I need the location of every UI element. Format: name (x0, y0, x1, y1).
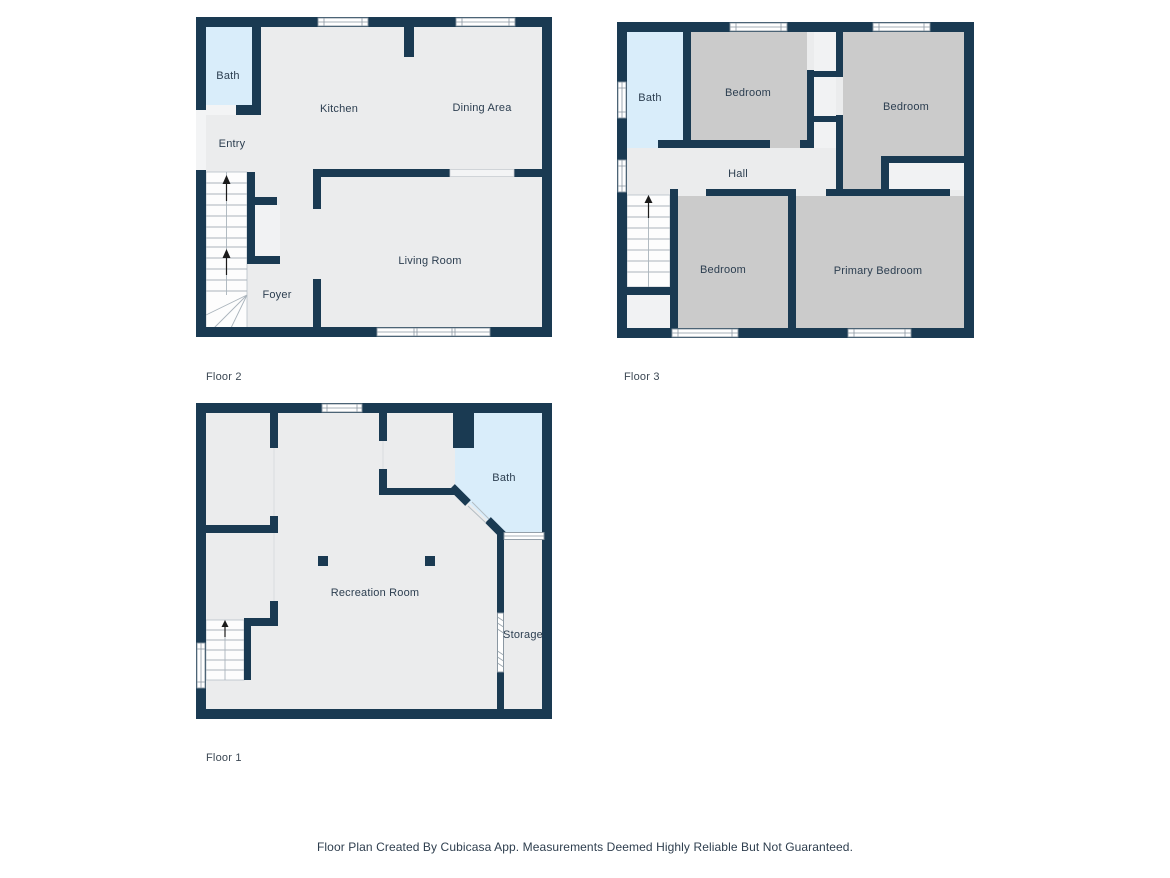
room-label-storage: Storage (503, 629, 543, 641)
entry-door-opening (196, 110, 206, 170)
stairs (206, 172, 247, 330)
room-label-primary-bedroom: Primary Bedroom (834, 265, 923, 277)
floor-3-plan-drawing (617, 22, 974, 338)
bath-door-opening (206, 105, 236, 115)
room-label-bath: Bath (638, 92, 661, 104)
room-label-bedroom-3: Bedroom (700, 264, 746, 276)
room-label-foyer: Foyer (262, 289, 291, 301)
footer-disclaimer: Floor Plan Created By Cubicasa App. Meas… (0, 840, 1170, 854)
room-label-living-room: Living Room (398, 255, 461, 267)
room-label-bedroom-2: Bedroom (883, 101, 929, 113)
room-label-entry: Entry (219, 138, 246, 150)
floor-plan-floor-3: Bath Bedroom Bedroom Hall Bedroom Primar… (617, 22, 974, 338)
floor-plan-floor-1: Bath Recreation Room Storage (196, 403, 552, 719)
floor-1-plan-drawing (196, 403, 552, 719)
room-label-recreation-room: Recreation Room (331, 587, 420, 599)
cased-opening (450, 170, 514, 177)
floor-plan-floor-2: Bath Kitchen Dining Area Entry Living Ro… (196, 17, 552, 337)
room-label-kitchen: Kitchen (320, 103, 358, 115)
storage-folding-door (498, 613, 504, 672)
room-label-hall: Hall (728, 168, 748, 180)
room-label-dining-area: Dining Area (452, 102, 511, 114)
floor-2-plan-drawing (196, 17, 552, 337)
stairs (627, 195, 670, 287)
room-label-bath: Bath (216, 70, 239, 82)
stairs (206, 620, 244, 680)
caption-floor-3: Floor 3 (624, 371, 660, 383)
caption-floor-1: Floor 1 (206, 752, 242, 764)
room-label-bedroom-1: Bedroom (725, 87, 771, 99)
caption-floor-2: Floor 2 (206, 371, 242, 383)
room-label-bath: Bath (492, 472, 515, 484)
